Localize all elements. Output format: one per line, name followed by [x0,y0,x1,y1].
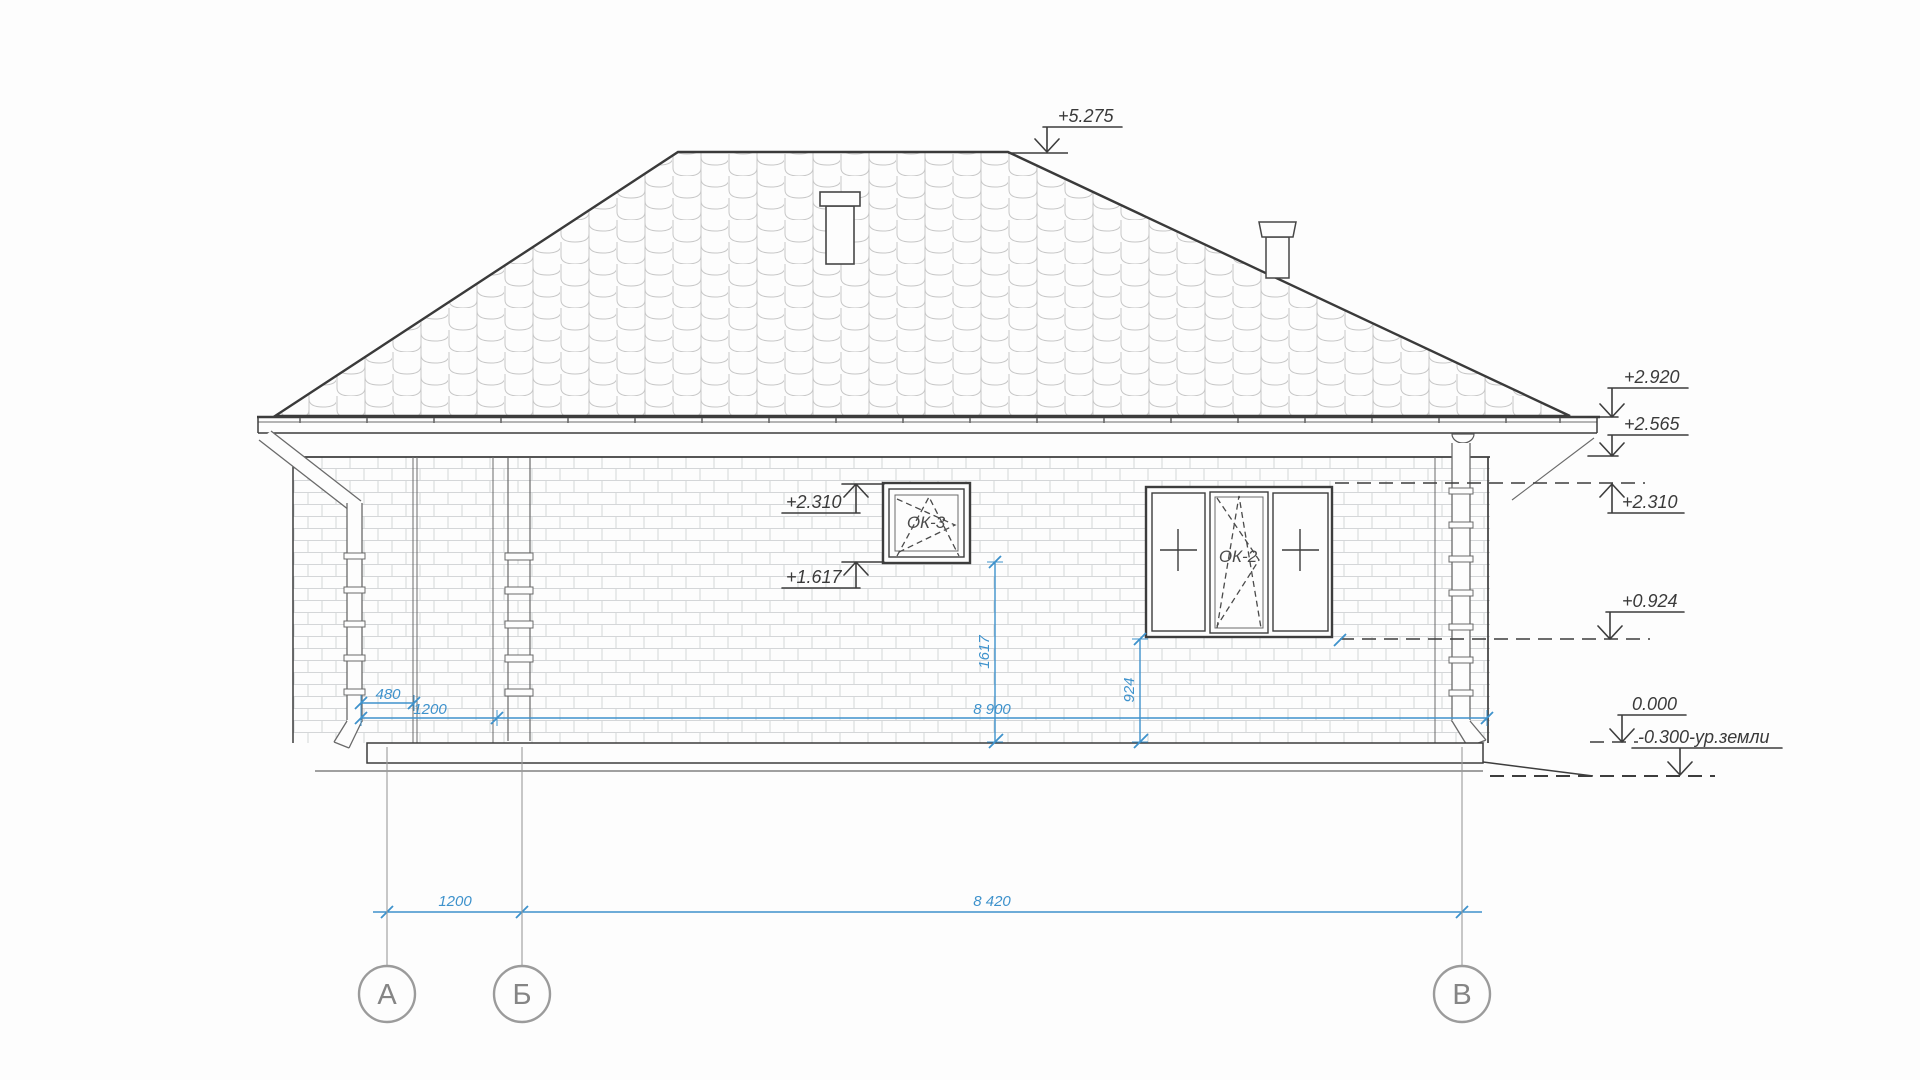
svg-text:+1.617: +1.617 [786,567,843,587]
axis-label-b: Б [512,979,531,1011]
svg-text:+2.310: +2.310 [1622,492,1678,512]
svg-text:+2.565: +2.565 [1624,414,1681,434]
mark-ridge: +5.275 [1035,106,1122,152]
dim-1200-axis: 1200 [438,893,472,910]
dim-1200-base: 1200 [413,701,447,718]
mark-sill-right: +0.924 [1598,591,1684,639]
elevation-drawing: ОК-3 ОК-2 480 1200 8 900 1617 [0,0,1920,1080]
window-small: ОК-3 [883,483,970,563]
mark-ground: -0.300-ур.земли [1632,727,1782,775]
axis-label-a: А [377,979,397,1011]
dim-924: 924 [1121,677,1138,702]
dim-8900: 8 900 [973,701,1011,718]
roof-slope-face [275,152,1570,416]
window-large-label: ОК-2 [1219,547,1258,566]
grid-axes: А Б В [359,747,1490,1022]
svg-text:+2.920: +2.920 [1624,367,1680,387]
hip-roof [275,152,1570,416]
svg-text:+2.310: +2.310 [786,492,842,512]
svg-text:0.000: 0.000 [1632,694,1677,714]
vent-pipe [1259,222,1296,278]
chimney [820,192,860,264]
gutter-funnel [1452,434,1474,443]
dim-480: 480 [375,686,401,703]
axis-label-v: В [1452,979,1471,1011]
mark-head-right: +2.310 [1600,484,1684,513]
axis-lines [387,747,1462,966]
mark-eave: +2.920 [1588,367,1688,417]
window-small-label: ОК-3 [907,513,946,532]
svg-text:-0.300-ур.земли: -0.300-ур.земли [1638,727,1770,747]
mark-wall-top: +2.565 [1588,414,1688,456]
dim-1617: 1617 [976,635,993,669]
window-large: ОК-2 [1146,487,1332,637]
plinth [367,743,1483,763]
svg-text:+0.924: +0.924 [1622,591,1678,611]
elevation-drawing-sheet: ОК-3 ОК-2 480 1200 8 900 1617 [0,0,1920,1080]
blind-area-slope [1483,762,1593,776]
svg-text:+5.275: +5.275 [1058,106,1115,126]
right-corner-soffit-line [1512,438,1594,500]
plinth-and-ground [315,742,1715,776]
dim-8420: 8 420 [973,893,1011,910]
